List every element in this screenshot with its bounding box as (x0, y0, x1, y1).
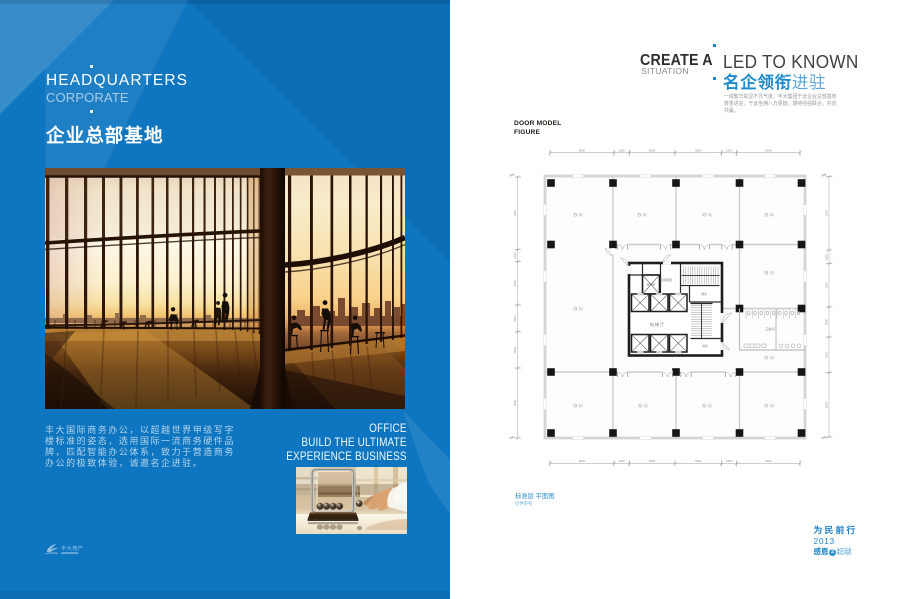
svg-text:丰大地产: 丰大地产 (61, 544, 83, 552)
svg-text:办 公: 办 公 (702, 402, 712, 409)
svg-text:6000: 6000 (513, 280, 517, 287)
svg-text:6000: 6000 (825, 210, 829, 217)
svg-text:8000: 8000 (765, 459, 772, 463)
svg-text:办 公: 办 公 (638, 402, 648, 409)
svg-text:卫生间: 卫生间 (765, 326, 774, 331)
svg-text:1500: 1500 (619, 459, 626, 463)
svg-text:6000: 6000 (513, 399, 517, 406)
svg-text:办 公: 办 公 (573, 305, 583, 312)
svg-text:合用前室: 合用前室 (660, 277, 672, 282)
svg-text:6000: 6000 (513, 315, 517, 322)
svg-text:6000: 6000 (513, 210, 517, 217)
svg-text:1500: 1500 (726, 148, 733, 152)
svg-text:办 公: 办 公 (702, 211, 712, 218)
svg-text:6000: 6000 (649, 148, 656, 152)
svg-text:8000: 8000 (579, 148, 586, 152)
svg-text:办 公: 办 公 (637, 211, 647, 218)
svg-text:6000: 6000 (825, 351, 829, 358)
svg-text:6000: 6000 (513, 252, 517, 259)
svg-text:前室: 前室 (702, 344, 708, 348)
svg-text:6000: 6000 (649, 459, 656, 463)
svg-text:电 梯 厅: 电 梯 厅 (650, 321, 664, 327)
svg-text:办 公: 办 公 (764, 354, 774, 361)
svg-text:1500: 1500 (726, 459, 733, 463)
svg-text:6000: 6000 (825, 401, 829, 408)
svg-text:8000: 8000 (765, 148, 772, 152)
svg-text:办 公: 办 公 (573, 402, 583, 409)
svg-text:消防梯: 消防梯 (647, 283, 656, 287)
svg-text:办 公: 办 公 (764, 402, 774, 409)
svg-text:办 公: 办 公 (573, 211, 583, 218)
svg-text:6000: 6000 (825, 253, 829, 260)
svg-text:6000: 6000 (825, 282, 829, 289)
svg-text:6000: 6000 (695, 148, 702, 152)
svg-text:6000: 6000 (825, 318, 829, 325)
svg-text:1500: 1500 (619, 148, 626, 152)
svg-text:6000: 6000 (513, 346, 517, 353)
svg-text:6000: 6000 (695, 459, 702, 463)
svg-text:办 公: 办 公 (764, 211, 774, 218)
svg-text:办 公: 办 公 (764, 269, 774, 276)
svg-text:8000: 8000 (579, 459, 586, 463)
svg-text:前室: 前室 (701, 292, 707, 296)
